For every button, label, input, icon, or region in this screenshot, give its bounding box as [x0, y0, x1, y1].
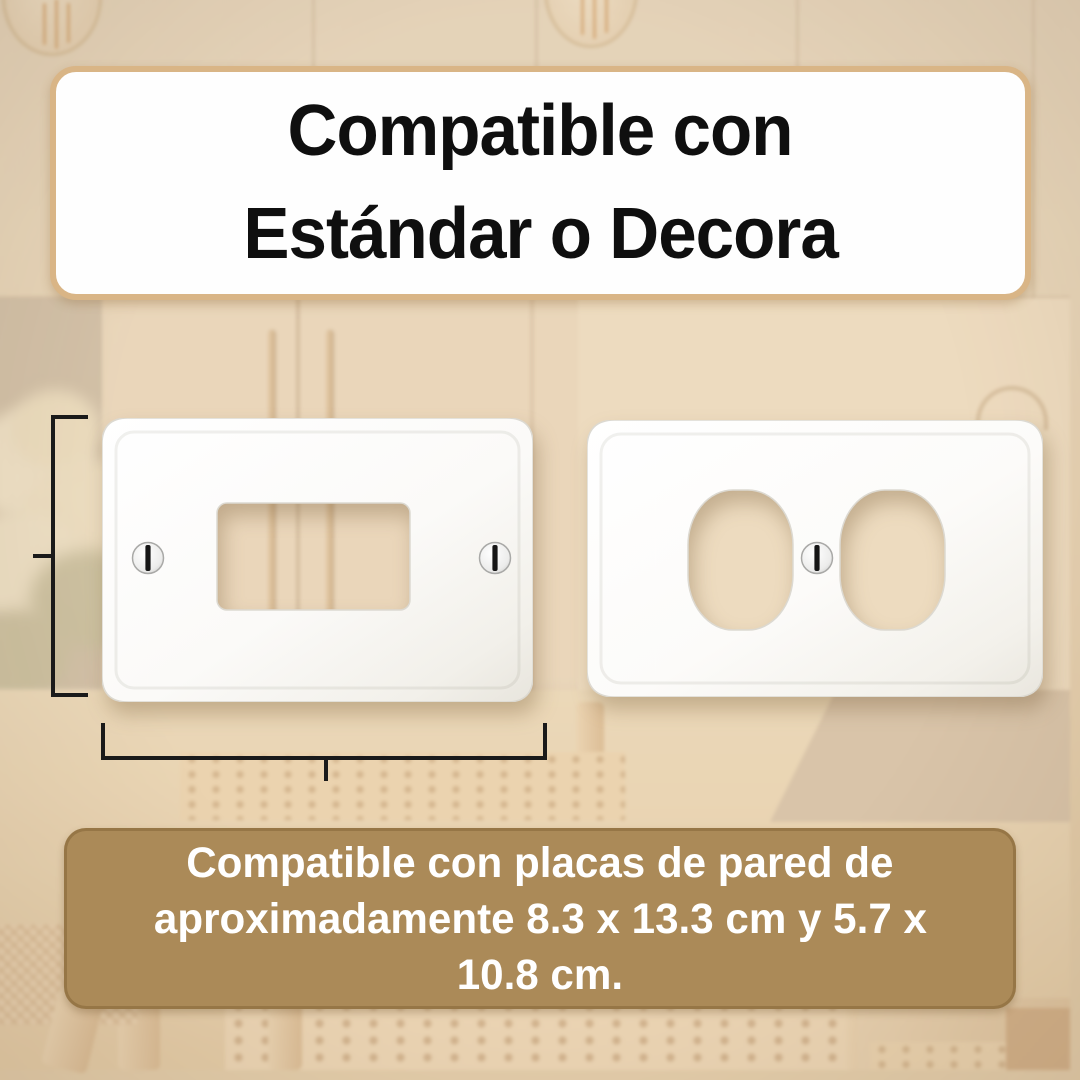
duplex-wallplate-icon [587, 420, 1043, 697]
footer-card: Compatible con placas de pared de aproxi… [64, 828, 1016, 1009]
screw-icon [802, 543, 833, 574]
footer-line-1: Compatible con placas de pared de [186, 835, 893, 891]
footer-line-2: aproximadamente 8.3 x 13.3 cm y 5.7 x [153, 891, 926, 947]
header-card: Compatible con Estándar o Decora [50, 66, 1031, 300]
product-infographic: Compatible con Estándar o Decora [0, 0, 1080, 1080]
height-dimension-bracket [33, 417, 88, 695]
heading-line-2: Estándar o Decora [243, 183, 837, 286]
heading-line-1: Compatible con [288, 80, 793, 183]
footer-line-3: 10.8 cm. [457, 947, 623, 1003]
width-dimension-bracket [103, 723, 545, 781]
dimension-annotations [20, 400, 580, 800]
